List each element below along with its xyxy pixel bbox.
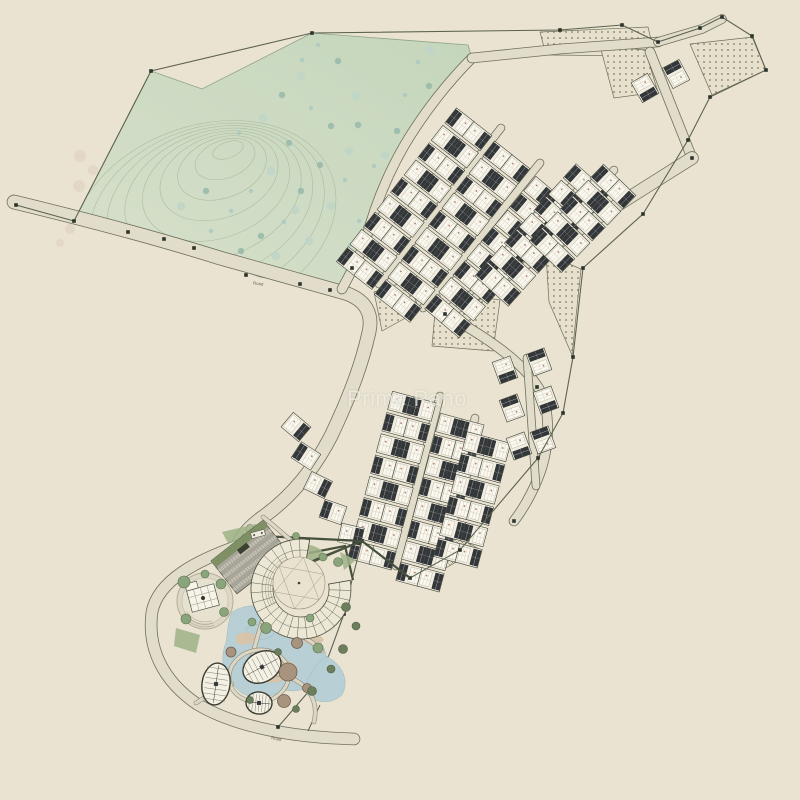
boundary-marker (458, 548, 462, 552)
boundary-marker (72, 219, 76, 223)
shrub-blob (278, 695, 291, 708)
tree (339, 645, 348, 654)
boundary-marker (686, 138, 690, 142)
tree (316, 43, 320, 47)
boundary-marker (720, 15, 724, 19)
boundary-marker (571, 355, 575, 359)
tree (328, 123, 334, 129)
tree (238, 248, 244, 254)
boundary-marker (443, 312, 447, 316)
boundary-marker (561, 411, 565, 415)
faded-tree (56, 239, 64, 247)
boundary-marker (310, 31, 314, 35)
boundary-marker (656, 40, 660, 44)
boundary-marker (14, 203, 18, 207)
tree (297, 72, 305, 80)
tree (345, 147, 353, 155)
boundary-marker (350, 266, 354, 270)
tree (258, 233, 264, 239)
tree (247, 697, 254, 704)
tree (381, 151, 389, 159)
tree (279, 92, 285, 98)
boundary-marker (750, 34, 754, 38)
boundary-marker (708, 95, 712, 99)
tree (394, 128, 400, 134)
boundary-marker (698, 26, 702, 30)
boundary-marker (244, 273, 248, 277)
tree (282, 220, 286, 224)
tree (335, 58, 341, 64)
tree (249, 189, 253, 193)
tree (220, 608, 229, 617)
faded-tree (73, 180, 85, 192)
tree (286, 140, 292, 146)
tree (267, 167, 275, 175)
tree (178, 576, 190, 588)
tree (327, 202, 335, 210)
tree (229, 209, 233, 213)
tree (300, 58, 304, 62)
boundary-marker (192, 246, 196, 250)
boundary-marker (162, 237, 166, 241)
tree (291, 206, 299, 214)
tree (293, 706, 300, 713)
tree (305, 237, 313, 245)
tree (203, 188, 209, 194)
tree (403, 93, 407, 97)
boundary-marker (620, 23, 624, 27)
tree (272, 252, 280, 260)
tree (216, 579, 226, 589)
tree (306, 614, 314, 622)
boundary-marker (536, 456, 540, 460)
tree (355, 122, 361, 128)
boundary-marker (581, 266, 585, 270)
tree (334, 558, 343, 567)
boundary-marker (535, 385, 539, 389)
tree (181, 614, 191, 624)
shrub-blob (279, 663, 297, 681)
tree (317, 162, 323, 168)
tree (209, 229, 213, 233)
tree (352, 92, 360, 100)
shrub-blob (292, 638, 303, 649)
tree (352, 622, 360, 630)
site-plan: RoadRoad Prime Pano (0, 0, 800, 800)
faded-tree (74, 150, 86, 162)
tree (426, 83, 432, 89)
tree (293, 533, 300, 540)
tree (201, 570, 209, 578)
boundary-marker (558, 28, 562, 32)
tree (343, 178, 347, 182)
site-plan-svg: RoadRoad (0, 0, 800, 800)
boundary-marker (328, 288, 332, 292)
tree (357, 219, 361, 223)
boundary-marker (690, 156, 694, 160)
faded-tree (88, 165, 98, 175)
tree (275, 649, 282, 656)
tree (426, 46, 434, 54)
tree (319, 553, 327, 561)
tree (259, 114, 267, 122)
tree (327, 665, 335, 673)
tree (309, 106, 313, 110)
tree (372, 164, 376, 168)
tree (237, 131, 241, 135)
shrub-blob (226, 647, 236, 657)
boundary-marker (764, 68, 768, 72)
tree (298, 188, 304, 194)
boundary-marker (512, 519, 516, 523)
tree (261, 623, 272, 634)
boundary-marker (641, 212, 645, 216)
faded-tree (65, 224, 75, 234)
boundary-marker (149, 69, 153, 73)
tree (342, 603, 351, 612)
boundary-marker (126, 230, 130, 234)
boundary-marker (276, 725, 280, 729)
tree (308, 687, 317, 696)
tree (177, 202, 185, 210)
tree (416, 60, 420, 64)
tree (313, 643, 323, 653)
tree (248, 618, 256, 626)
boundary-marker (298, 282, 302, 286)
